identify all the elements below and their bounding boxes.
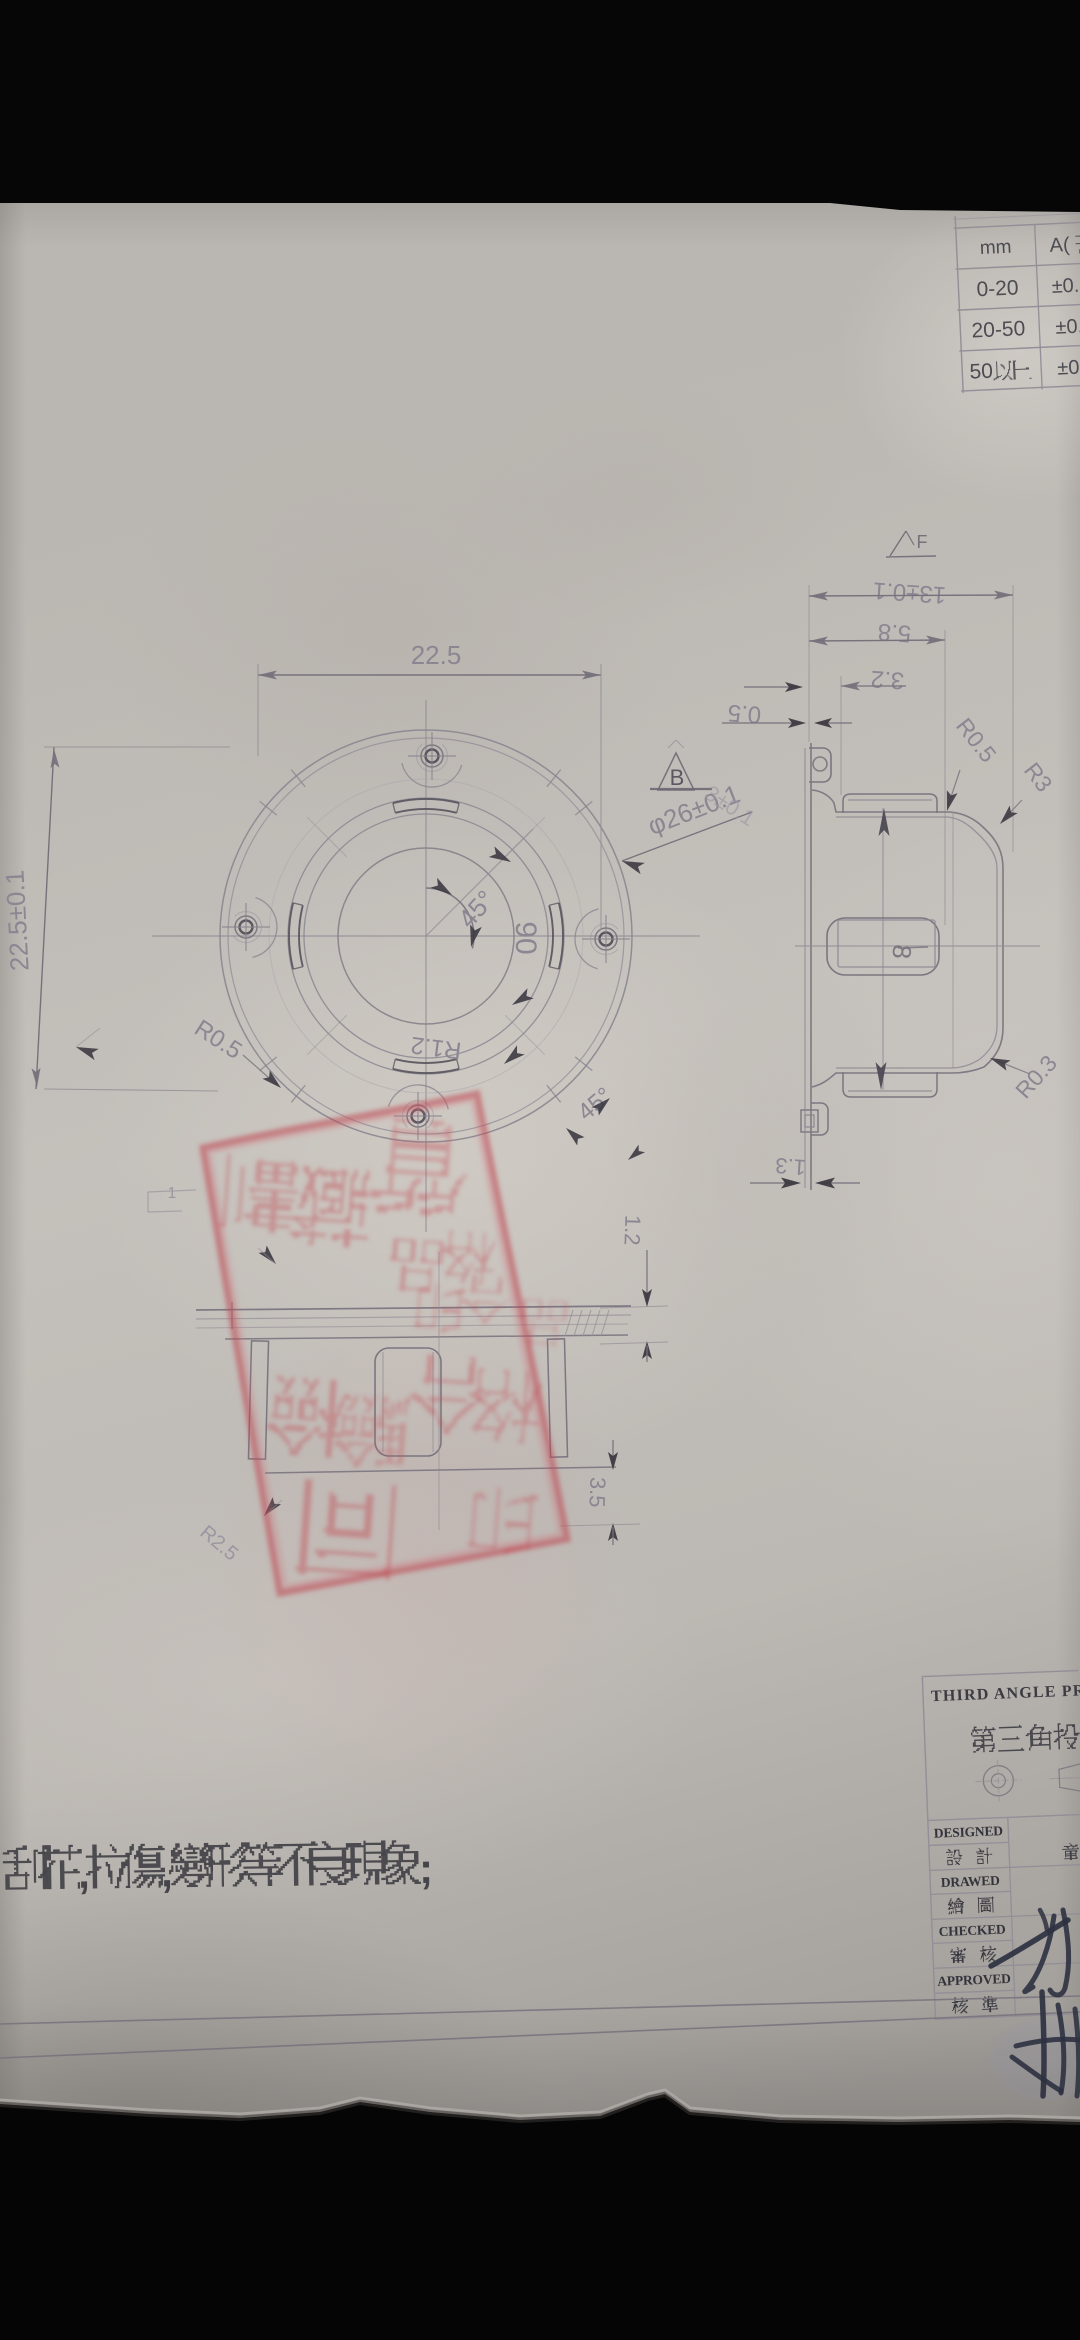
svg-text:APPROVED: APPROVED [937,1971,1011,1989]
svg-text:±0.: ±0. [1051,275,1080,298]
svg-text:CHECKED: CHECKED [938,1922,1006,1940]
svg-text:R0.3: R0.3 [1010,1050,1062,1104]
svg-text:45°: 45° [573,1082,618,1126]
svg-text:±0.: ±0. [1057,356,1080,379]
svg-text:DRAWED: DRAWED [941,1873,1001,1890]
svg-text:R2.5: R2.5 [196,1521,243,1565]
svg-text:R1.2: R1.2 [409,1031,463,1064]
svg-text:13±0.1: 13±0.1 [872,576,947,608]
svg-text:R3: R3 [1019,757,1058,796]
svg-text:1.2: 1.2 [619,1215,645,1246]
svg-text:45°: 45° [452,884,501,933]
svg-text:50: 50 [969,360,993,384]
svg-text:mm: mm [979,237,1012,259]
svg-text:20-50: 20-50 [971,317,1026,342]
svg-text:3.5: 3.5 [584,1477,610,1508]
svg-text:R0.5: R0.5 [951,713,1001,767]
svg-text:F: F [917,532,928,552]
svg-text:3.2: 3.2 [870,665,905,694]
svg-text:1.3: 1.3 [774,1153,806,1180]
svg-text:90: 90 [509,921,542,954]
svg-text:±0.: ±0. [1055,315,1080,338]
svg-text:0.5: 0.5 [727,699,762,728]
svg-text:DESIGNED: DESIGNED [934,1823,1004,1841]
svg-text:22.5±0.1: 22.5±0.1 [0,869,35,971]
svg-text:22.5: 22.5 [411,640,462,670]
svg-text:0-20: 0-20 [976,276,1019,301]
svg-text:;: ; [419,1845,434,1892]
svg-text:A(: A( [1049,234,1070,257]
svg-text:THIRD ANGLE PR: THIRD ANGLE PR [931,1682,1080,1705]
svg-text:5.8: 5.8 [877,618,912,647]
svg-text:8: 8 [886,943,917,960]
svg-text:1: 1 [168,1185,177,1202]
svg-text:B: B [670,765,685,790]
